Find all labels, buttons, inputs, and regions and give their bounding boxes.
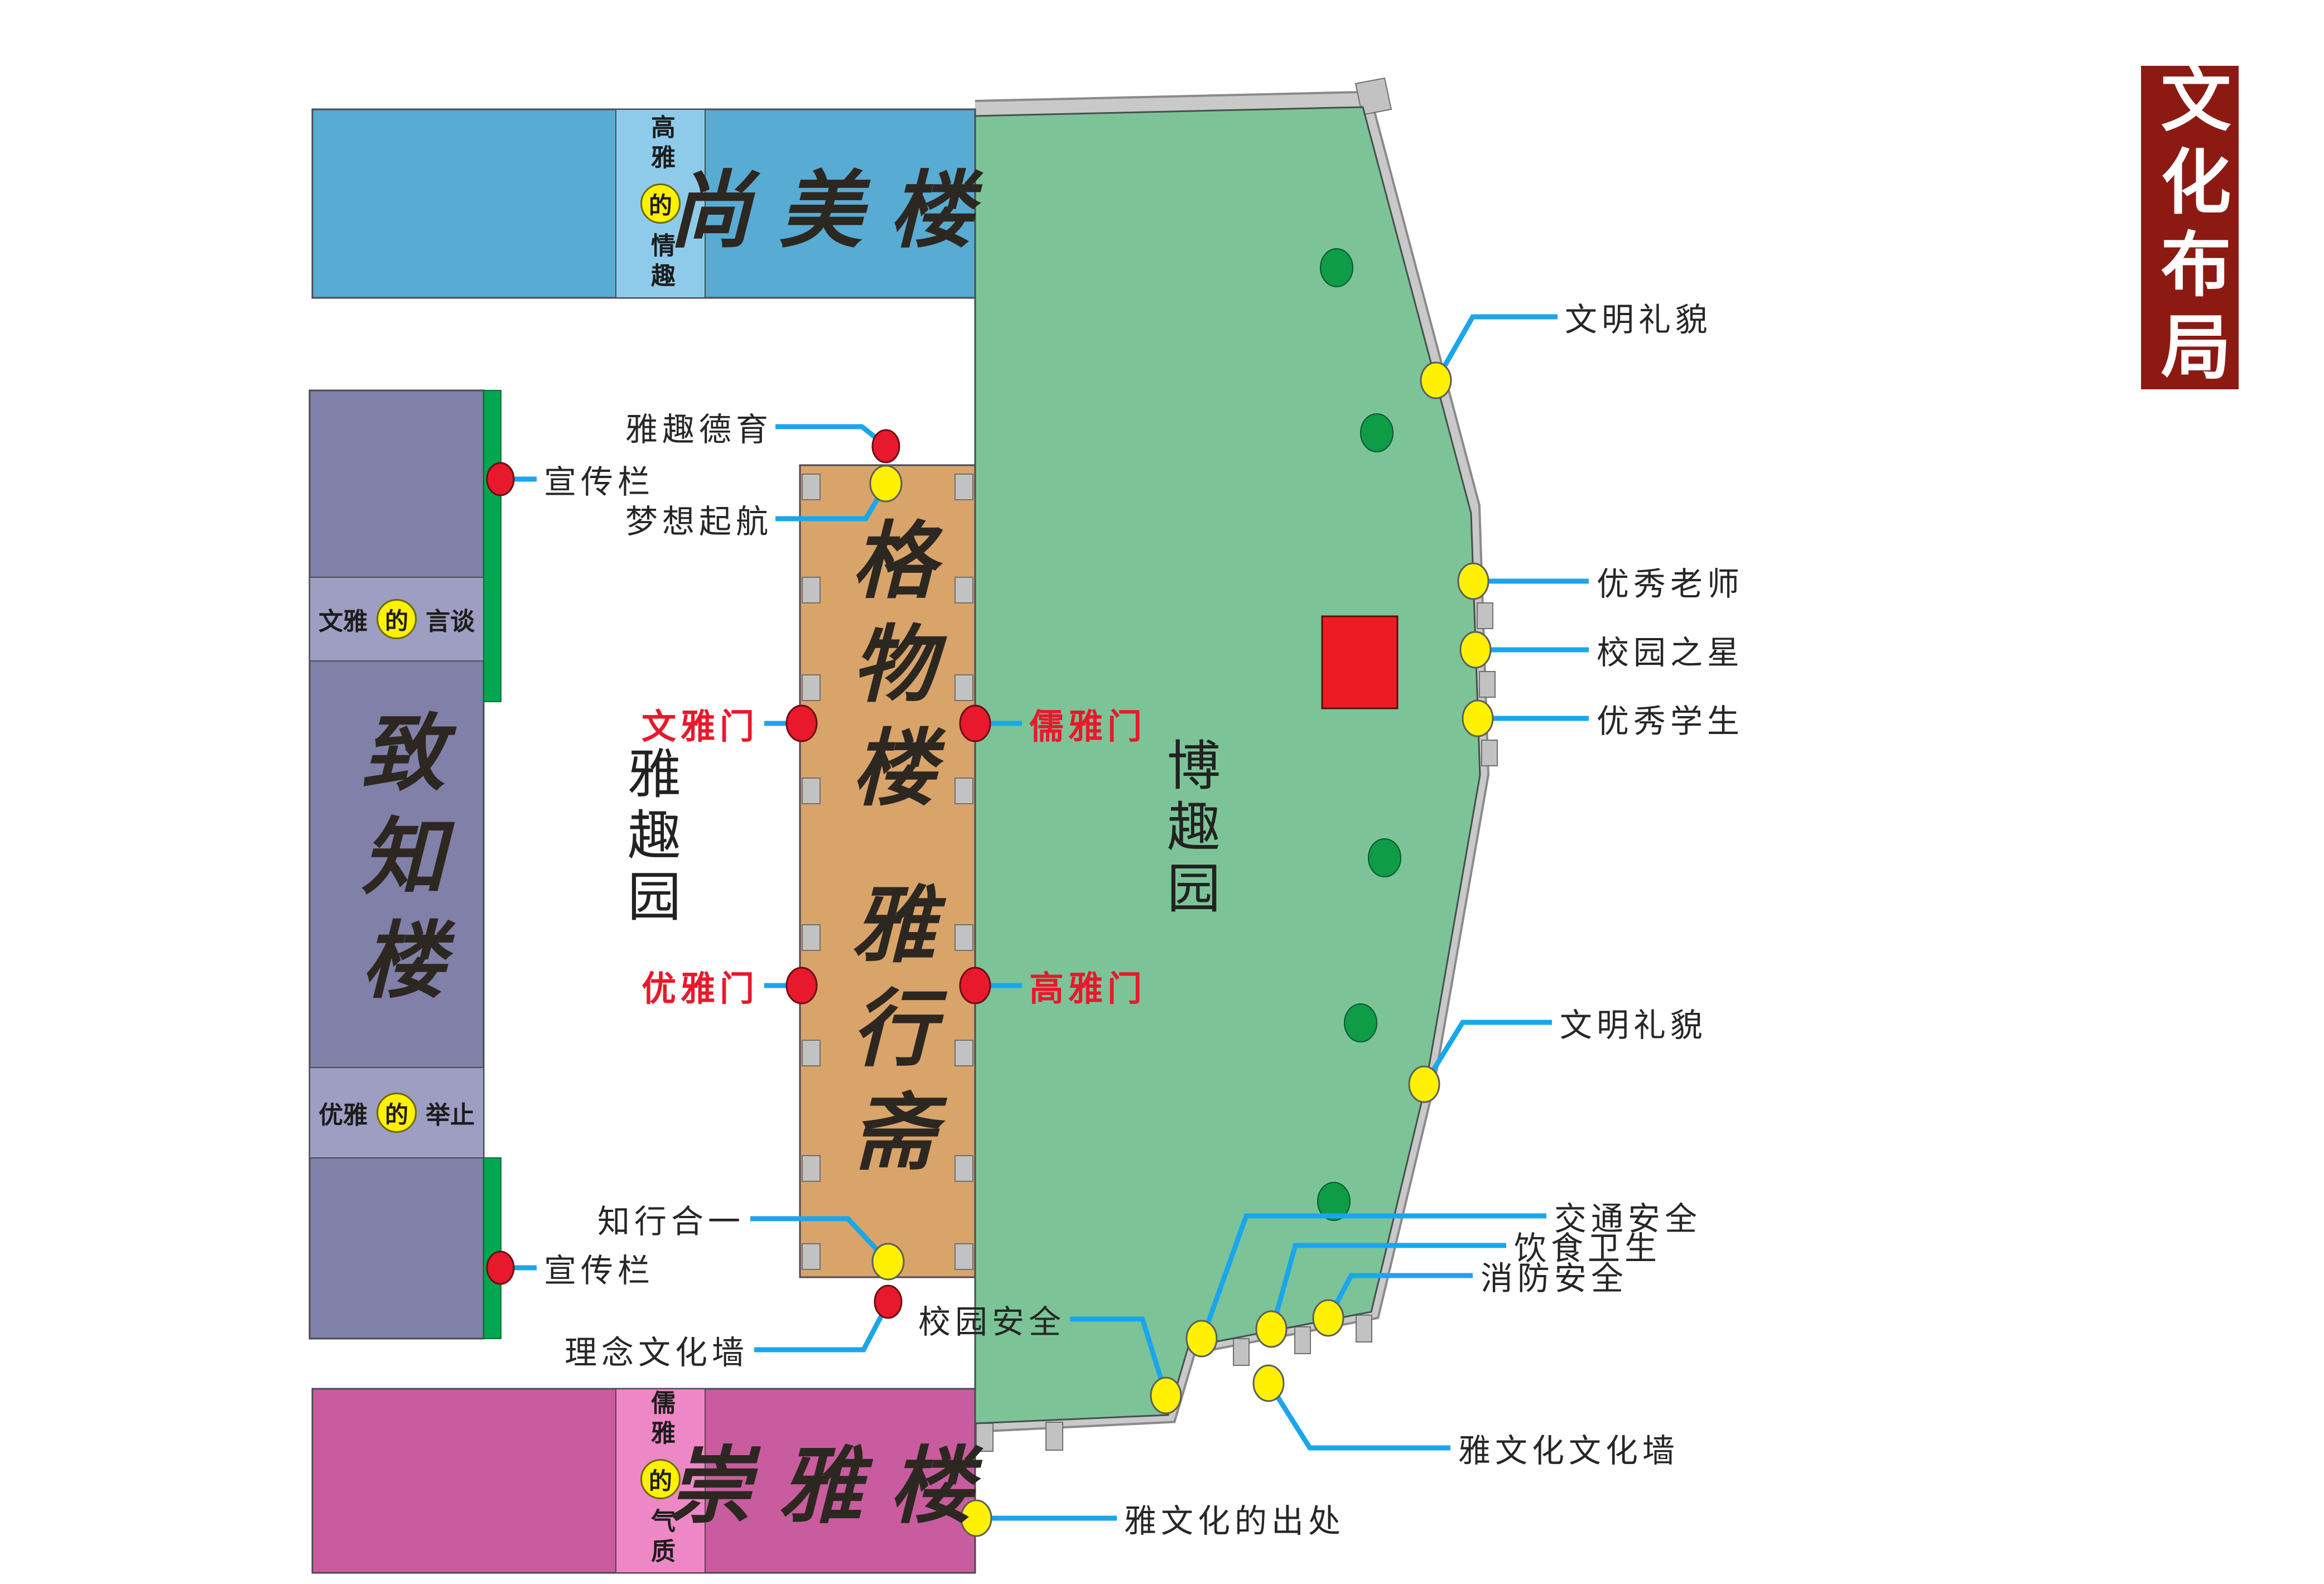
tree-dot	[1368, 839, 1401, 877]
band-text: 文雅	[319, 601, 368, 637]
band-text: 气质	[643, 1508, 678, 1568]
dot-yawenhua-wall	[1253, 1365, 1284, 1401]
label-wenming-limao-mid: 文明礼貌	[1560, 999, 1707, 1046]
band-text: 高雅	[643, 114, 678, 175]
dot-youxiu-xuesheng	[1463, 701, 1493, 736]
dot-mengxiang	[870, 466, 901, 501]
campus-culture-layout-map: 文化布局 尚美楼 致知楼 格物楼 雅行斋 崇雅楼 雅趣园 博趣园 高雅 的 情趣…	[0, 0, 2324, 1584]
page-title-box: 文化布局	[2141, 66, 2239, 389]
building-name-gewu: 格物楼	[827, 516, 948, 828]
label-wenya-men: 文雅门	[642, 698, 759, 748]
dot-yinshi	[1256, 1311, 1286, 1347]
de-circle: 的	[640, 183, 681, 224]
band-text: 优雅	[319, 1095, 368, 1131]
green-strip-bottom	[484, 1158, 501, 1339]
band-text: 举止	[426, 1095, 475, 1131]
dot-wenming-top	[1421, 363, 1451, 398]
dot-wenming-mid	[1409, 1066, 1439, 1102]
dot-jiaotong	[1187, 1321, 1217, 1356]
leader-yawenhua-wall	[1270, 1384, 1450, 1448]
band-text: 情趣	[643, 233, 678, 293]
band-zhizhi-top: 文雅 的 言谈	[319, 599, 475, 639]
label-xiaofang-anquan: 消防安全	[1481, 1252, 1628, 1299]
band-text: 儒雅	[643, 1390, 678, 1450]
label-linian-wall: 理念文化墙	[565, 1326, 749, 1373]
red-square-landmark	[1322, 616, 1397, 708]
label-youxiu-laoshi: 优秀老师	[1597, 558, 1744, 605]
label-zhixing-heyi: 知行合一	[597, 1195, 745, 1242]
dot-xuanchuanlan-bot	[487, 1252, 514, 1284]
building-name-chongya: 崇雅楼	[668, 1419, 1000, 1540]
label-xuanchuanlan-top: 宣传栏	[544, 456, 654, 503]
label-yawenhua-chuchu: 雅文化的出处	[1124, 1495, 1345, 1542]
dot-yaqu-deyu	[872, 430, 899, 462]
wall-tab	[1477, 603, 1493, 629]
dot-xiaoyuan-star	[1460, 632, 1491, 668]
wall-tab	[1233, 1339, 1249, 1365]
building-name-zhizhi: 致知楼	[336, 709, 457, 1020]
green-strip-top	[484, 390, 501, 702]
dot-xiaofang	[1313, 1300, 1343, 1336]
dot-xiaoyuan-anquan	[1151, 1378, 1181, 1413]
dot-gate-youya	[787, 968, 817, 1003]
label-gaoya-men: 高雅门	[1029, 960, 1146, 1011]
dot-zhixing-heyi	[872, 1244, 904, 1279]
area-name-boquyuan: 博趣园	[1151, 737, 1228, 921]
band-chongya: 儒雅 的 气质	[640, 1390, 681, 1568]
wall-tab	[1046, 1422, 1063, 1450]
de-circle: 的	[640, 1459, 681, 1499]
wall-tab	[1479, 672, 1495, 697]
label-xiaoyuan-anquan: 校园安全	[918, 1296, 1065, 1342]
area-name-yaquyuan: 雅趣园	[611, 746, 689, 930]
dot-gate-gaoya	[960, 968, 990, 1003]
tree-dot	[1344, 1004, 1377, 1042]
dot-linian-wall	[875, 1286, 901, 1318]
de-circle: 的	[377, 1093, 417, 1133]
leader-yaqu-deyu	[775, 427, 886, 446]
leader-wenming-top	[1437, 317, 1558, 379]
page-title: 文化布局	[2139, 62, 2241, 393]
wall-tab	[1356, 1315, 1372, 1342]
band-shangmei: 高雅 的 情趣	[640, 114, 681, 293]
label-yawenhua-wall: 雅文化文化墙	[1458, 1424, 1679, 1471]
tree-dot	[1320, 249, 1353, 287]
label-yaqu-deyu: 雅趣德育	[625, 403, 773, 450]
dot-youxiu-laoshi	[1458, 563, 1488, 599]
label-youxiu-xuesheng: 优秀学生	[1597, 695, 1744, 742]
tree-dot	[1361, 414, 1393, 452]
building-name-yaxingzhai: 雅行斋	[827, 881, 948, 1192]
building-name-shangmei: 尚美楼	[668, 143, 1000, 264]
label-xiaoyuan-zhixing: 校园之星	[1597, 626, 1744, 673]
dot-gate-ruya	[960, 706, 990, 741]
dot-xuanchuanlan-top	[487, 463, 514, 495]
label-xuanchuanlan-bottom: 宣传栏	[544, 1244, 654, 1291]
band-text: 言谈	[426, 601, 475, 637]
band-zhizhi-bottom: 优雅 的 举止	[319, 1093, 475, 1133]
de-circle: 的	[377, 599, 417, 639]
label-ruya-men: 儒雅门	[1029, 698, 1146, 748]
wall-tab	[1295, 1327, 1310, 1354]
dot-gate-wenya	[787, 706, 817, 741]
wall-tab	[1482, 740, 1497, 766]
leader-linian-wall	[754, 1304, 888, 1350]
label-youya-men: 优雅门	[642, 960, 759, 1011]
label-wenming-limao-top: 文明礼貌	[1565, 293, 1712, 340]
